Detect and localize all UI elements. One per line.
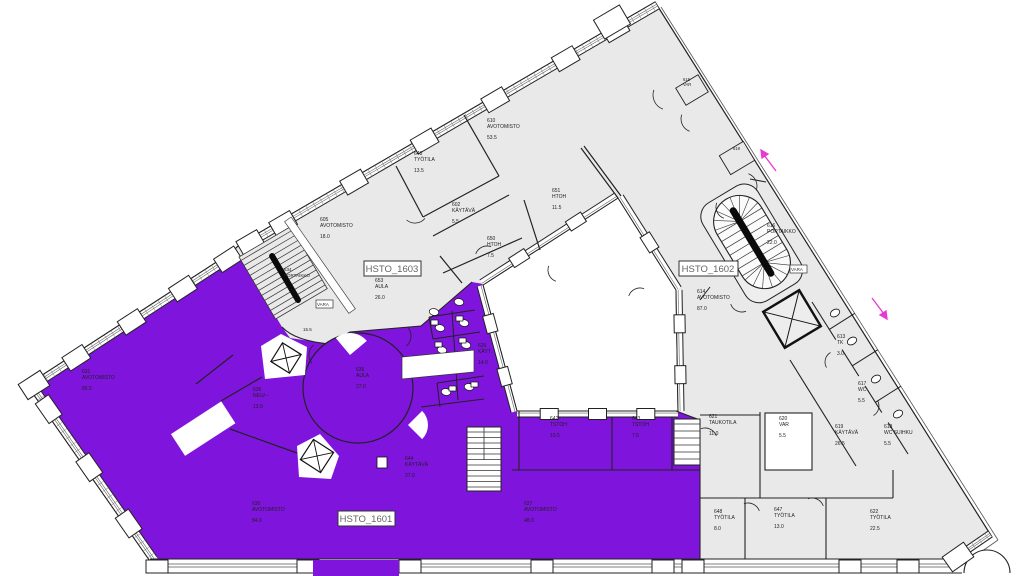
- svg-text:26.5: 26.5: [835, 441, 845, 447]
- svg-text:11.5: 11.5: [552, 205, 562, 211]
- svg-text:HSTO_1602: HSTO_1602: [682, 264, 735, 275]
- svg-text:22.0: 22.0: [767, 240, 777, 246]
- svg-text:VAR: VAR: [779, 422, 789, 428]
- svg-text:HTOH: HTOH: [552, 194, 566, 200]
- svg-text:5.5: 5.5: [884, 441, 891, 447]
- svg-text:TYÖTILA: TYÖTILA: [714, 514, 736, 521]
- svg-text:AVOTOMISTO: AVOTOMISTO: [252, 507, 285, 513]
- svg-text:5.5: 5.5: [452, 219, 459, 225]
- svg-text:84.0: 84.0: [252, 518, 262, 524]
- svg-text:22.5: 22.5: [870, 526, 880, 532]
- svg-text:7.5: 7.5: [487, 253, 494, 259]
- svg-text:VARA: VARA: [791, 267, 803, 272]
- svg-text:WC SUIHKU: WC SUIHKU: [884, 430, 913, 436]
- svg-text:TSTOH: TSTOH: [550, 422, 567, 428]
- svg-text:10.5: 10.5: [550, 433, 560, 439]
- svg-text:27.0: 27.0: [405, 473, 415, 479]
- svg-text:13.5: 13.5: [414, 168, 424, 174]
- svg-text:7.5: 7.5: [632, 433, 639, 439]
- svg-text:85.5: 85.5: [82, 386, 92, 392]
- svg-text:48.0: 48.0: [524, 518, 534, 524]
- svg-text:HSTO_1601: HSTO_1601: [340, 514, 393, 525]
- svg-text:AVOTOMISTO: AVOTOMISTO: [487, 124, 520, 130]
- svg-text:AULA: AULA: [356, 373, 370, 379]
- svg-text:HTOH: HTOH: [487, 242, 501, 248]
- svg-text:13.0: 13.0: [774, 524, 784, 530]
- svg-text:PORTAIKKO: PORTAIKKO: [284, 273, 310, 278]
- svg-text:TK: TK: [837, 340, 844, 346]
- svg-text:AULA: AULA: [375, 284, 389, 290]
- svg-text:KÄYTÄVÄ: KÄYTÄVÄ: [405, 461, 429, 468]
- svg-text:NEU/--: NEU/--: [253, 393, 269, 399]
- svg-text:VAR: VAR: [683, 82, 691, 87]
- svg-text:KÄYT.: KÄYT.: [478, 348, 492, 355]
- svg-text:HSTO_1603: HSTO_1603: [366, 264, 419, 275]
- svg-text:TYÖTILA: TYÖTILA: [774, 512, 796, 519]
- svg-text:WC: WC: [858, 387, 867, 393]
- svg-text:18.0: 18.0: [320, 234, 330, 240]
- svg-text:87.0: 87.0: [697, 306, 707, 312]
- svg-text:3.0: 3.0: [837, 351, 844, 357]
- svg-text:KÄYTÄVÄ: KÄYTÄVÄ: [835, 429, 859, 436]
- svg-text:VARA: VARA: [317, 302, 329, 307]
- svg-text:14.0: 14.0: [478, 360, 488, 366]
- svg-text:13.0: 13.0: [253, 404, 263, 410]
- svg-text:8.0: 8.0: [714, 526, 721, 532]
- svg-text:AVOTOMISTO: AVOTOMISTO: [82, 375, 115, 381]
- svg-text:PORTAIKKO: PORTAIKKO: [767, 229, 796, 235]
- svg-text:15.5: 15.5: [303, 327, 312, 332]
- svg-text:11.0: 11.0: [709, 431, 719, 437]
- svg-text:619: 619: [733, 146, 741, 151]
- svg-text:AVOTOMISTO: AVOTOMISTO: [320, 223, 353, 229]
- svg-text:TAUKOTILA: TAUKOTILA: [709, 420, 737, 426]
- svg-text:5.5: 5.5: [858, 398, 865, 404]
- svg-text:TYÖTILA: TYÖTILA: [414, 156, 436, 163]
- svg-text:634: 634: [284, 267, 292, 272]
- svg-text:AVOTOMISTO: AVOTOMISTO: [697, 295, 730, 301]
- svg-text:TSTOH: TSTOH: [632, 422, 649, 428]
- svg-text:53.5: 53.5: [487, 135, 497, 141]
- svg-text:TYÖTILA: TYÖTILA: [870, 514, 892, 521]
- svg-text:AVOTOMISTO: AVOTOMISTO: [524, 507, 557, 513]
- svg-text:5.5: 5.5: [779, 433, 786, 439]
- svg-text:KÄYTÄVÄ: KÄYTÄVÄ: [452, 207, 476, 214]
- svg-text:26.0: 26.0: [375, 295, 385, 301]
- svg-text:27.0: 27.0: [356, 384, 366, 390]
